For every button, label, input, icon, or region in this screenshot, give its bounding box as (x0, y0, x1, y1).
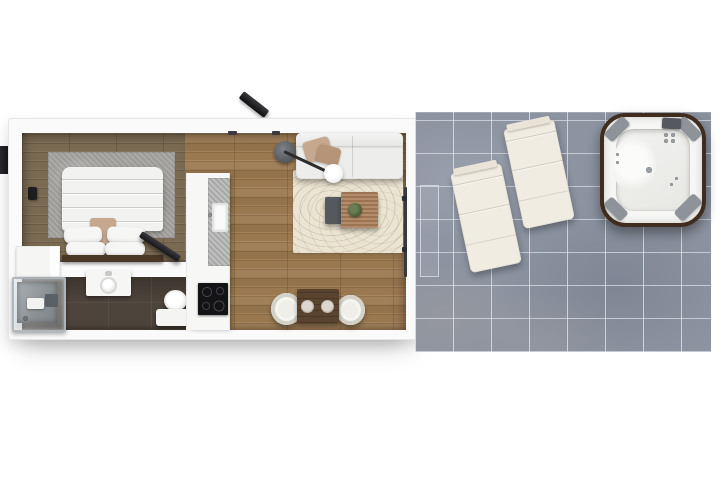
washbasin-vanity (86, 270, 131, 296)
hot-tub (600, 113, 706, 227)
sun-lounger (503, 119, 575, 230)
dining-chair (336, 295, 365, 325)
drain (646, 167, 652, 173)
shower-drain (23, 316, 28, 321)
potted-plant (348, 203, 362, 217)
place-setting (321, 300, 334, 313)
washbasin (100, 277, 117, 294)
lounger-headrest (453, 160, 497, 176)
entry-door-hinge (228, 131, 237, 135)
coffee-table (341, 192, 378, 228)
sofa-seam (352, 136, 353, 177)
shower (12, 277, 66, 332)
pillow (66, 242, 106, 256)
kitchen-sink (212, 203, 228, 232)
shower-fixture (27, 298, 44, 309)
terrace-step (420, 185, 439, 277)
jet (670, 183, 673, 186)
sliding-door-handle (402, 247, 407, 252)
arc-lamp-shade (324, 164, 343, 183)
jet (664, 133, 668, 137)
apartment (8, 118, 420, 340)
sofa (296, 133, 403, 179)
toilet-bowl (164, 290, 187, 311)
bed (62, 167, 163, 262)
entrance-lamp (239, 91, 270, 118)
lounger-headrest (506, 116, 550, 132)
dining-table (297, 289, 339, 323)
place-setting (301, 300, 314, 313)
cooktop (198, 283, 228, 315)
entry-door-stop (272, 131, 280, 135)
bedroom-wall-lamp (28, 187, 37, 200)
toilet-tank (156, 309, 188, 326)
floor-plan-render (0, 0, 728, 500)
sliding-door-handle (402, 196, 407, 201)
jet (616, 161, 619, 164)
jet (671, 133, 675, 137)
headboard (62, 255, 163, 262)
wardrobe (16, 246, 60, 277)
jet (671, 139, 675, 143)
faucet (105, 271, 112, 276)
jet (616, 153, 619, 156)
hot-tub-seat (612, 137, 656, 193)
hot-tub-control-panel (662, 118, 682, 130)
jet (675, 177, 678, 180)
sofa-pillow (315, 143, 342, 166)
kitchen-faucet (208, 213, 212, 217)
shower-shelf (45, 294, 58, 307)
jet (664, 139, 668, 143)
pillow (105, 242, 145, 256)
sun-lounger (450, 163, 522, 274)
terrace (415, 112, 711, 352)
kitchen-cabinet (186, 173, 230, 330)
